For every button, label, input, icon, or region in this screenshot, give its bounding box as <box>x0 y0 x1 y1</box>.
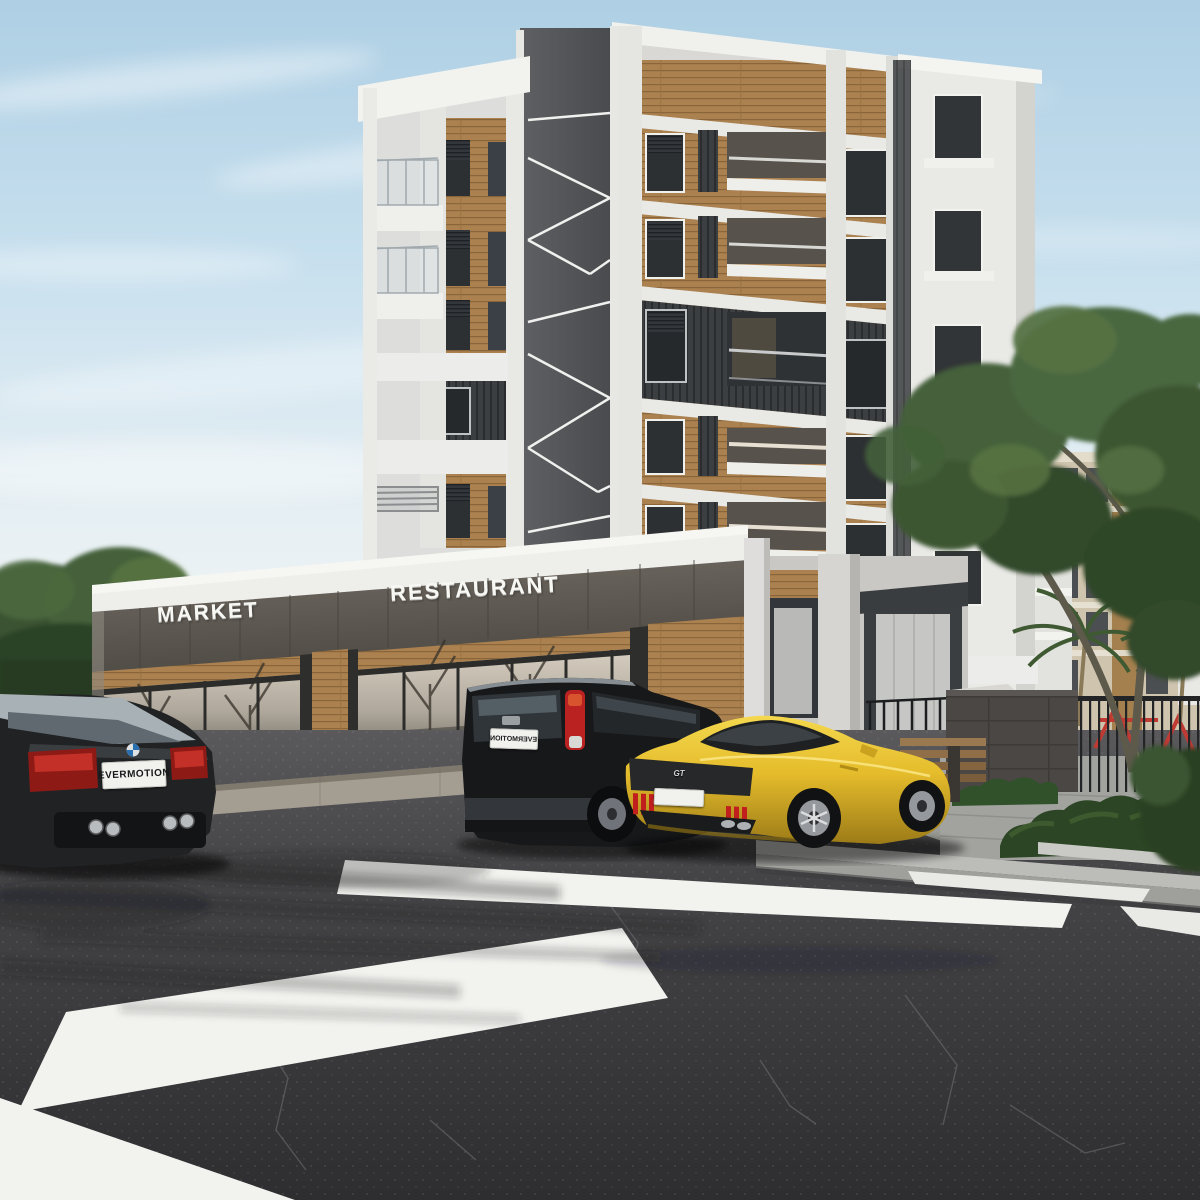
coupe-license-plate: EVERMOTION <box>101 760 166 790</box>
suv-license-plate: EVERMOTION <box>490 728 539 750</box>
tower-left-section <box>358 56 530 568</box>
architectural-render: MARKET RESTAURANT EVERMOTION EVERMOTION … <box>0 0 1200 1200</box>
tower-right-section <box>612 22 910 610</box>
render-canvas <box>0 0 1200 1200</box>
suv-plate-text: EVERMOTION <box>490 735 537 744</box>
gt-badge: GT <box>670 768 688 778</box>
sports-car-license-plate <box>654 788 705 807</box>
dark-core <box>516 26 618 558</box>
